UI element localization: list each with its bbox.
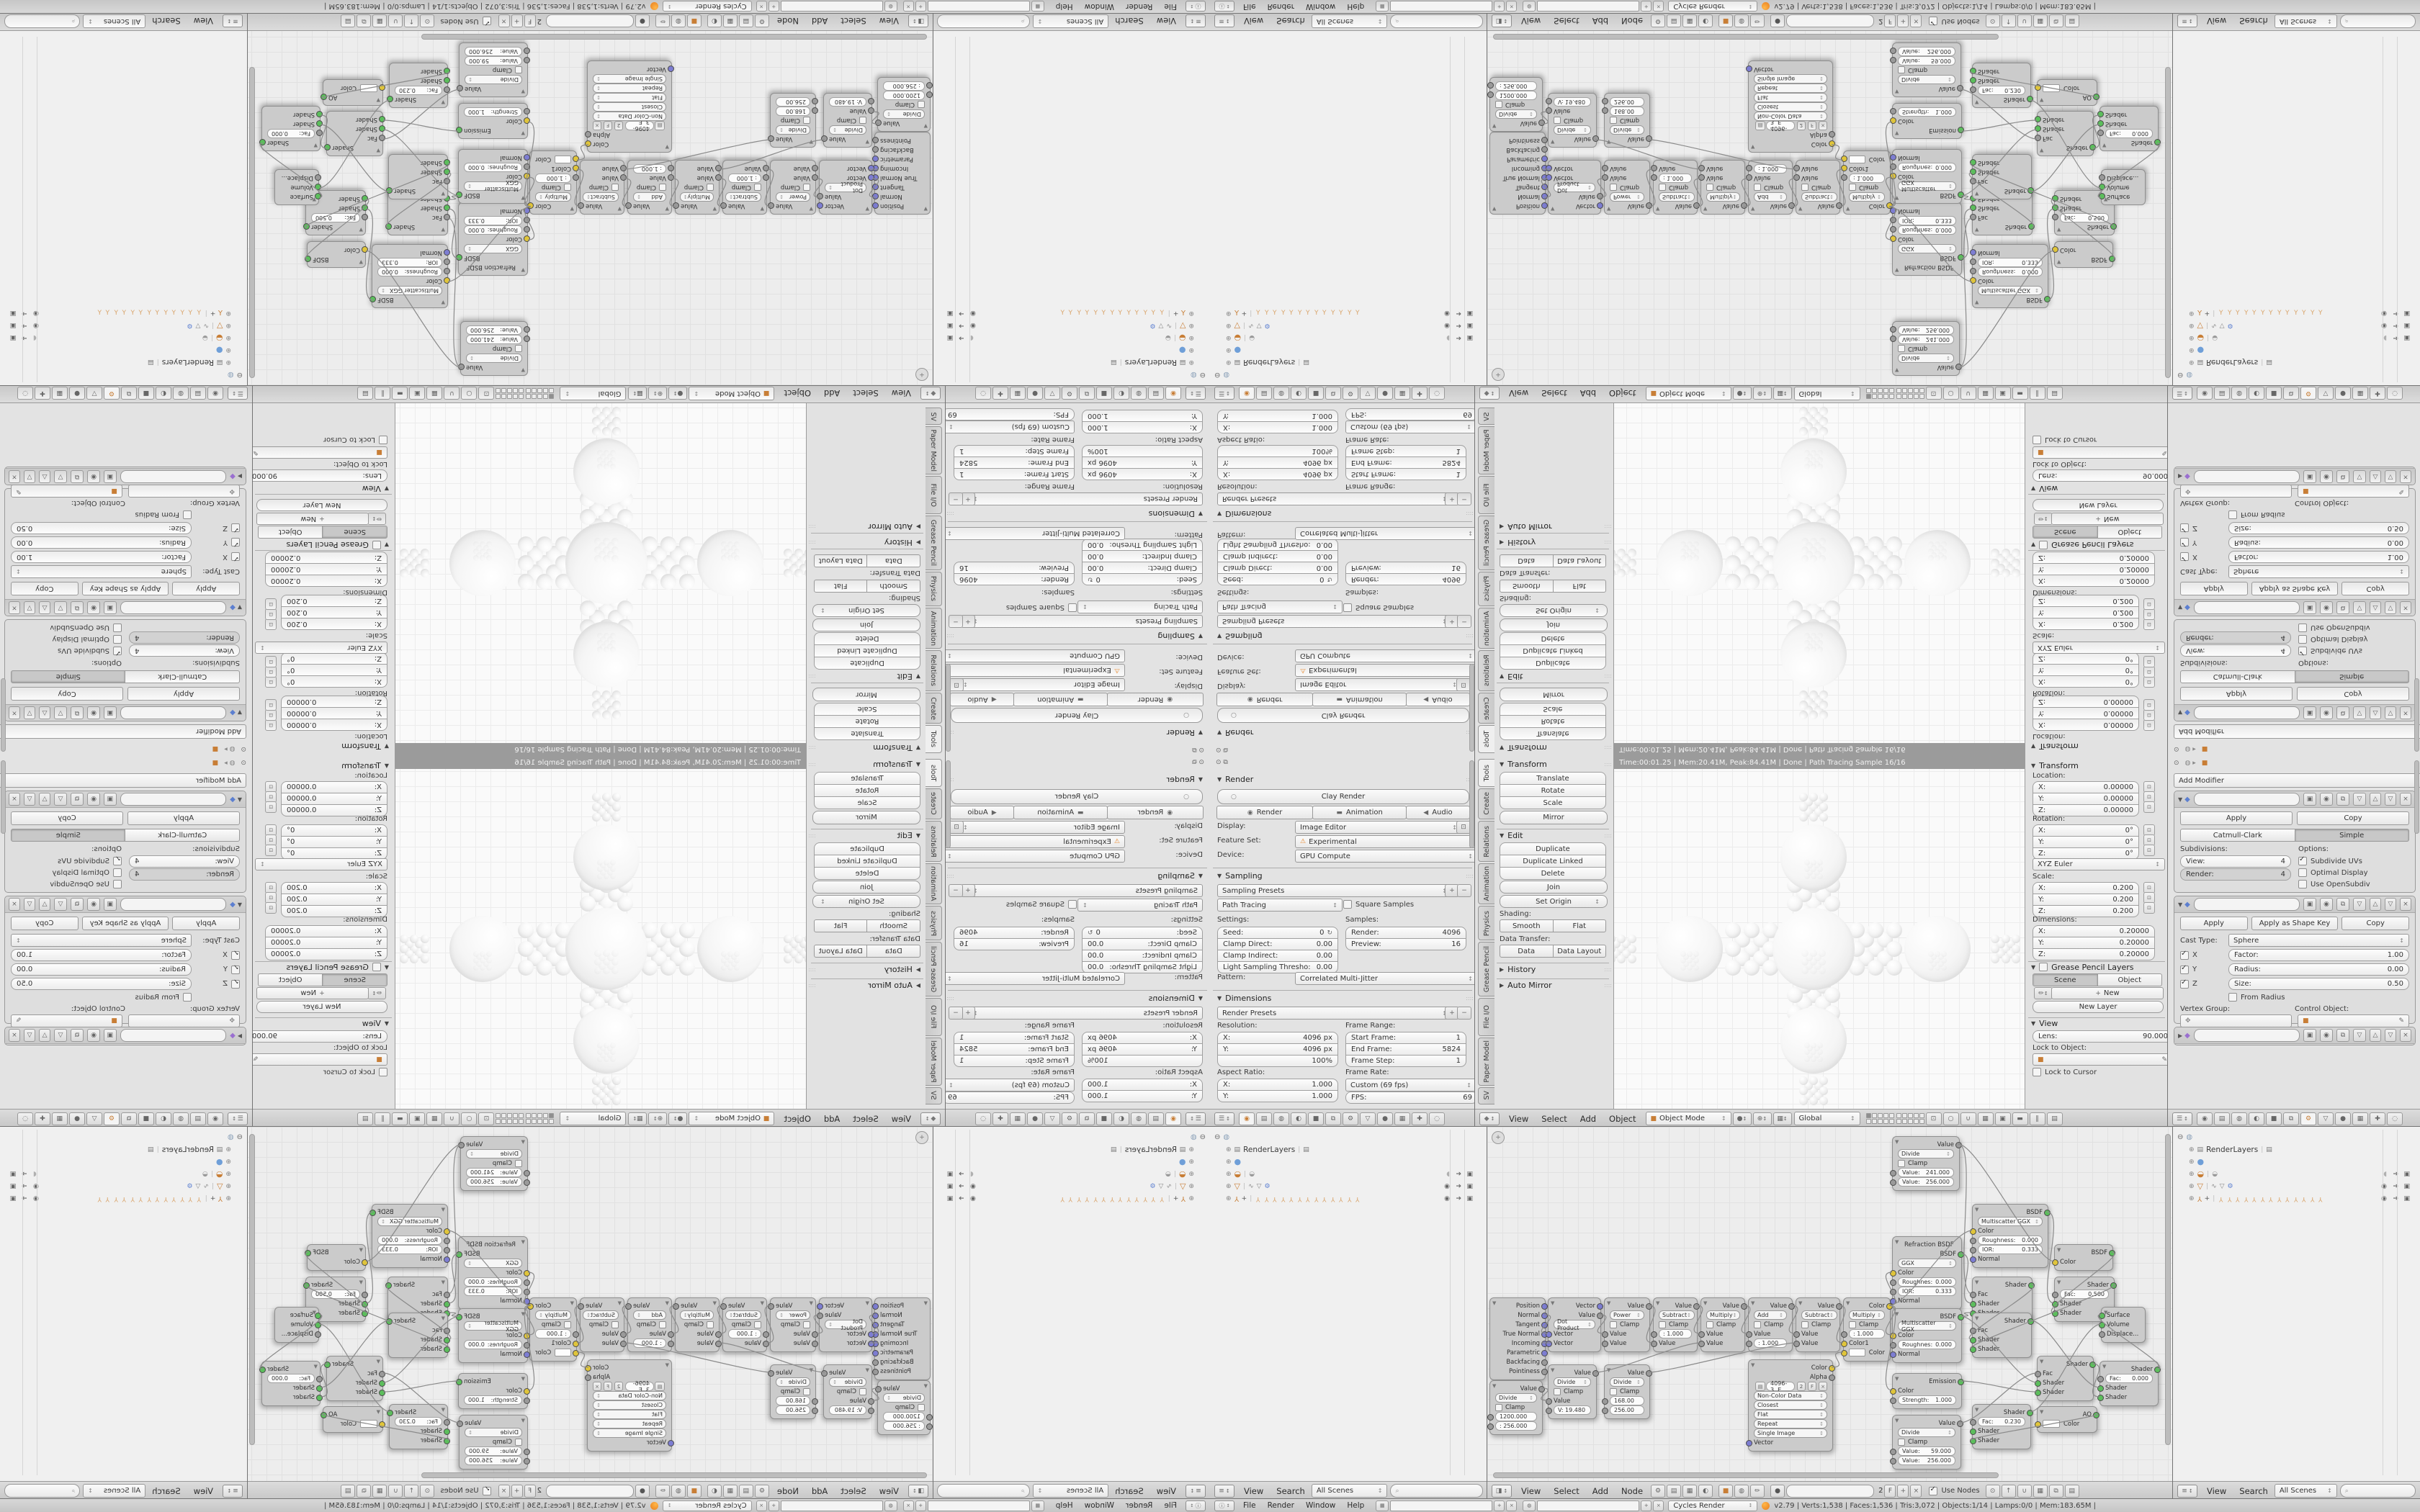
layer-cell[interactable] <box>549 1113 554 1118</box>
lock-axis-button[interactable]: ⊡ <box>265 902 277 914</box>
panel-auto-mirror[interactable]: ▶Auto Mirror:::: <box>1497 522 1615 532</box>
node-shader[interactable]: ▼ShaderFacShaderShader <box>2037 111 2094 156</box>
tab-modifiers[interactable]: ⚙ <box>1062 1112 1077 1125</box>
object-button[interactable]: ■ <box>1718 15 1733 28</box>
tab-world[interactable]: ◐ <box>1291 387 1307 400</box>
tab-render-layers[interactable]: ▤ <box>1148 387 1164 400</box>
node-scrollbar-vertical[interactable] <box>249 1134 255 1445</box>
node-checkbox[interactable] <box>611 184 619 192</box>
checkbox[interactable] <box>2039 541 2048 549</box>
tab-render-layers[interactable]: ▤ <box>2214 387 2230 400</box>
node-shader[interactable]: ▼ShaderFacShaderShader <box>388 1313 448 1358</box>
modifier-subsurf-move-up-button[interactable]: △ <box>39 793 50 806</box>
node-menu[interactable]: Multiply↕ <box>1849 192 1885 202</box>
layer-cell[interactable] <box>496 388 501 393</box>
scene-icon-button[interactable]: ◍ <box>884 1 897 12</box>
search-input[interactable]: ⌕ <box>1390 14 1483 28</box>
toolshelf-tab-fileio[interactable]: File I/O <box>926 998 942 1036</box>
node-checkbox[interactable] <box>859 1388 866 1395</box>
preset-remove-button[interactable]: − <box>1457 615 1471 628</box>
input-socket[interactable] <box>1970 160 1976 166</box>
node-menu[interactable]: Multiscatter GGX↕ <box>464 1321 522 1331</box>
menu-file[interactable]: File <box>1237 2 1262 11</box>
editor-type-button[interactable]: ☰↕ <box>228 387 248 400</box>
num-field-size_row[interactable]: Size:0.50 <box>2228 522 2409 534</box>
input-socket[interactable] <box>316 1376 323 1382</box>
node-refraction-bsdf[interactable]: ▼Refraction BSDFBSDFGGX↕ColorRoughnes:0.… <box>458 1236 528 1310</box>
input-socket[interactable] <box>715 1341 722 1347</box>
output-socket[interactable] <box>369 1210 376 1216</box>
button-transform[interactable]: Scale <box>814 796 920 809</box>
lock-object-field[interactable]: ■✎ <box>2033 446 2169 459</box>
modifier-cast-eye-toggle[interactable]: ◉ <box>2320 601 2333 614</box>
button-set-origin[interactable]: Set Origin↕ <box>812 604 920 617</box>
layer-cell[interactable] <box>1889 394 1894 399</box>
shader-type-button[interactable]: ⚙ <box>1651 15 1665 28</box>
editor-type-button[interactable]: ☰↕ <box>1214 387 1234 400</box>
unlink-material-button[interactable]: × <box>498 1485 510 1498</box>
num-field-resolution[interactable]: X:4096 px <box>1082 1032 1203 1044</box>
layer-cell[interactable] <box>526 394 531 399</box>
output-socket[interactable] <box>625 1303 632 1310</box>
button-mirror[interactable]: Mirror <box>812 688 920 701</box>
input-socket[interactable] <box>362 215 368 221</box>
image-icon-button[interactable]: ▤ <box>1755 121 1765 130</box>
input-socket[interactable] <box>524 336 530 343</box>
button-join[interactable]: Join <box>1500 881 1608 894</box>
panel-history[interactable]: ▶History:::: <box>805 538 923 548</box>
image-button[interactable]: ▤ <box>739 15 753 28</box>
button-audio_btn[interactable]: ◀Audio <box>950 693 1014 706</box>
material-name-field[interactable] <box>546 1485 634 1498</box>
panel-auto-mirror[interactable]: ▶Auto Mirror:::: <box>805 522 923 532</box>
num-field-aspect[interactable]: Y:1.000 <box>1082 410 1203 422</box>
modifier-cast-move-up-button[interactable]: △ <box>39 601 50 614</box>
input-socket[interactable] <box>1793 166 1800 172</box>
layer-grid[interactable] <box>1866 388 1894 399</box>
menu-view[interactable]: View <box>1150 17 1183 27</box>
node-menu[interactable]: GGX↕ <box>1898 244 1956 253</box>
node-value-field[interactable]: IOR:0.333 <box>1898 216 1956 225</box>
tab-physics[interactable]: ◌ <box>1429 1112 1445 1125</box>
output-socket[interactable] <box>1541 147 1548 153</box>
layer-cell[interactable] <box>526 388 531 393</box>
node-menu[interactable]: Multiply↕ <box>680 1310 714 1320</box>
outliner-row-renderlayers[interactable]: ⊕▤RenderLayers|▤ <box>937 356 1206 369</box>
input-socket[interactable] <box>573 156 579 163</box>
node-checkbox[interactable] <box>707 184 714 192</box>
output-socket[interactable] <box>872 156 879 163</box>
num-field-settings[interactable]: Light Sampling Thresho:0.00 <box>1082 539 1203 551</box>
input-socket[interactable] <box>668 1440 674 1446</box>
num-field-resolution[interactable]: 100% <box>1217 445 1338 457</box>
pattern-menu[interactable]: Correlated Multi-Jitter↕ <box>945 527 1125 540</box>
gp-new-layer-button[interactable]: New Layer <box>256 1001 387 1013</box>
panel-dimensions[interactable]: ▼Dimensions:::: <box>945 508 1206 520</box>
input-socket[interactable] <box>1602 108 1608 114</box>
modifier-collapsed-cage-toggle[interactable]: ▽ <box>54 1029 67 1042</box>
node-checkbox[interactable] <box>1898 67 1905 74</box>
panel-auto-mirror[interactable]: ▶Auto Mirror:::: <box>1497 980 1615 990</box>
button-data-layout[interactable]: Data Layout <box>814 554 868 567</box>
node-shader[interactable]: ▼ShaderFac:0.230ShaderShader <box>389 63 448 108</box>
tab-constraints[interactable]: ⧉ <box>1325 387 1341 400</box>
toolshelf-tab-sv[interactable]: SV <box>1478 1087 1494 1104</box>
subsurf-render_row[interactable]: Render:4 <box>129 868 240 881</box>
input-socket[interactable] <box>362 196 368 202</box>
input-socket[interactable] <box>362 1310 368 1317</box>
outliner-row-object-mesh[interactable]: ⊕▽|∿▽⚙◉➔▣ <box>1214 320 1483 332</box>
node-ao[interactable]: ▼AOColor <box>323 1406 383 1433</box>
output-socket[interactable] <box>872 147 879 153</box>
render-presets-menu[interactable]: Render Presets↕ <box>1217 492 1452 505</box>
panel-dimensions[interactable]: ▼Dimensions:::: <box>945 992 1206 1004</box>
tab-constraints[interactable]: ⧉ <box>121 387 137 400</box>
input-socket[interactable] <box>1970 269 1976 275</box>
node-value-field[interactable]: IOR:0.333 <box>377 1245 442 1254</box>
cast-copy-button[interactable]: Copy <box>11 917 79 930</box>
tab-material[interactable]: ● <box>1377 1112 1393 1125</box>
gp-new-button[interactable]: +New <box>2051 513 2164 525</box>
panel-view[interactable]: ▼View <box>251 484 392 494</box>
output-socket[interactable] <box>1541 194 1548 200</box>
node-bsdf[interactable]: ▼BSDFColor <box>307 241 366 268</box>
layout-name-field[interactable] <box>928 1 1030 12</box>
input-socket[interactable] <box>379 1380 385 1387</box>
input-socket[interactable] <box>2052 215 2058 221</box>
tab-data[interactable]: ▽ <box>1360 387 1376 400</box>
node-menu[interactable]: Multiscatter GGX↕ <box>464 181 522 191</box>
framerate-menu[interactable]: Custom (69 fps)↕ <box>945 420 1075 433</box>
tab-render[interactable]: ◉ <box>1165 1112 1181 1125</box>
input-socket[interactable] <box>524 1179 530 1186</box>
output-socket[interactable] <box>2109 256 2115 263</box>
input-socket[interactable] <box>1970 179 1976 185</box>
lock-axis-button[interactable]: ⊡ <box>2143 801 2155 813</box>
num-field-radius_row[interactable]: Radius:0.00 <box>2228 536 2409 549</box>
outliner-row-scene[interactable]: ⊖◍ <box>2177 369 2416 381</box>
image-users-button[interactable]: 2 <box>614 1382 623 1391</box>
integrator-menu[interactable]: Path Tracing↕ <box>1077 600 1203 613</box>
copy-button[interactable]: ⧉ <box>357 1485 371 1498</box>
input-socket[interactable] <box>316 1385 323 1392</box>
node-menu[interactable]: Divide↕ <box>776 1377 810 1387</box>
num-field-settings[interactable]: Seed:0↻ <box>1082 927 1203 939</box>
menu-search[interactable]: Search <box>1270 17 1312 27</box>
node-bsdf[interactable]: ▼BSDFMultiscatter GGX↕ColorRoughness:0.0… <box>1972 244 2048 308</box>
pause-button[interactable]: ‖ <box>2030 387 2045 400</box>
modifier-cast-cage-toggle[interactable]: ▽ <box>2353 601 2366 614</box>
tab-particles[interactable]: ✚ <box>992 1112 1008 1125</box>
toolshelf-tab-fileio[interactable]: File I/O <box>926 476 942 514</box>
output-socket[interactable] <box>817 1313 823 1319</box>
menu-render[interactable]: Render <box>1120 2 1158 11</box>
layer-cell[interactable] <box>519 1113 524 1118</box>
tab-scene[interactable]: ◍ <box>1273 387 1289 400</box>
menu-select[interactable]: Select <box>846 1114 884 1124</box>
button-flat[interactable]: Flat <box>1553 580 1607 593</box>
button-set-origin[interactable]: Set Origin↕ <box>1500 895 1608 908</box>
node-value-field[interactable]: Roughness:0.000 <box>1978 267 2043 276</box>
node-checkbox[interactable] <box>1610 117 1617 125</box>
modifier-cast-render-toggle[interactable]: ▣ <box>104 898 117 911</box>
modifier-subsurf-eye-toggle[interactable]: ◉ <box>87 706 100 719</box>
sphere-button[interactable]: ◐ <box>707 15 722 28</box>
modifier-collapsed-eye-toggle[interactable]: ◉ <box>87 1029 100 1042</box>
scene-lock-button[interactable]: ⊡ <box>478 387 494 400</box>
input-socket[interactable] <box>444 1292 450 1298</box>
modifier-collapsed-name-field[interactable] <box>120 470 226 483</box>
tab-scene[interactable]: ◍ <box>173 1112 189 1125</box>
dimensions-field[interactable]: Y:0.20000 <box>265 563 387 575</box>
output-socket[interactable] <box>458 1142 465 1148</box>
delete-layout-button[interactable]: × <box>903 1 914 12</box>
menu-view[interactable]: View <box>885 1114 918 1124</box>
input-socket[interactable] <box>524 217 530 224</box>
tab-data[interactable]: ▽ <box>1360 1112 1376 1125</box>
opengl-render-button[interactable]: ▬ <box>2012 387 2028 400</box>
rotation-field[interactable]: X:0° <box>2033 824 2139 837</box>
modifier-collapsed-render-toggle[interactable]: ▣ <box>104 1029 117 1042</box>
node-menu[interactable]: GGX↕ <box>464 1259 522 1268</box>
node-shader[interactable]: ▼ShaderFac:0.230ShaderShader <box>1972 63 2031 108</box>
num-field-samples[interactable]: Render:4096 <box>1345 927 1466 939</box>
input-socket[interactable] <box>444 278 450 284</box>
modifier-cast-editmode-toggle[interactable]: ⧉ <box>71 601 84 614</box>
input-socket[interactable] <box>524 1170 530 1176</box>
output-socket[interactable] <box>817 194 823 200</box>
input-socket[interactable] <box>379 135 385 142</box>
output-socket[interactable] <box>386 188 393 194</box>
input-socket[interactable] <box>1841 156 1847 163</box>
node-position[interactable]: ▼PositionNormalTangentTrue NormalIncomin… <box>874 1297 931 1380</box>
layer-cell[interactable] <box>549 394 554 399</box>
input-socket[interactable] <box>573 1331 579 1338</box>
output-socket[interactable] <box>305 256 311 263</box>
num-field-aspect[interactable]: X:1.000 <box>1082 421 1203 433</box>
paste-button[interactable]: ▤ <box>341 15 355 28</box>
display-mode-menu[interactable]: All Scenes↕ <box>1312 14 1388 28</box>
panel-render[interactable]: ▼Render:::: <box>1214 727 1475 739</box>
output-socket[interactable] <box>1829 132 1835 138</box>
num-field-settings[interactable]: Clamp Direct:0.00 <box>1217 938 1338 950</box>
dimensions-field[interactable]: Y:0.20000 <box>2033 563 2155 575</box>
input-socket[interactable] <box>444 1438 450 1444</box>
lock-to-cursor-checkbox[interactable]: Lock to Cursor <box>272 1068 387 1076</box>
node-menu[interactable]: Repeat↕ <box>593 84 666 93</box>
node-value-field[interactable]: : 1.000 <box>728 1329 761 1338</box>
rotation-field[interactable]: Y:0° <box>2033 664 2139 676</box>
tab-data[interactable]: ▽ <box>1044 387 1060 400</box>
toolshelf-tab-relations[interactable]: Relations <box>926 821 942 862</box>
button-transform[interactable]: Scale <box>1500 703 1606 716</box>
input-socket[interactable] <box>868 99 874 105</box>
checker-button[interactable]: ▦ <box>723 1485 738 1498</box>
input-socket[interactable] <box>2099 175 2105 181</box>
input-socket[interactable] <box>444 205 450 212</box>
axis-checkbox[interactable]: Z <box>2180 524 2225 533</box>
unlink-material-button[interactable]: × <box>1910 15 1922 28</box>
lock-axis-button[interactable]: ⊡ <box>265 676 277 688</box>
node-menu[interactable]: Subtract↕ <box>1659 192 1695 202</box>
snap-button[interactable]: ∪ <box>388 1485 403 1498</box>
subsurf-view_row[interactable]: View:4 <box>2180 644 2291 657</box>
input-socket[interactable] <box>316 1395 323 1401</box>
node-shader[interactable]: ▼ShaderFacShaderShader <box>326 1356 383 1401</box>
panel-npanel-transform[interactable]: ▼Transform <box>2028 742 2169 752</box>
layer-cell[interactable] <box>537 1113 542 1118</box>
color-swatch[interactable] <box>360 1420 377 1428</box>
layer-cell[interactable] <box>1896 394 1901 399</box>
editor-type-button[interactable]: ⓘ↕ <box>1186 1 1206 12</box>
node-menu[interactable]: Multiply↕ <box>535 192 571 202</box>
input-socket[interactable] <box>926 1423 933 1430</box>
input-socket[interactable] <box>444 1301 450 1308</box>
num-field-frame-range[interactable]: Start Frame:1 <box>1345 468 1466 480</box>
num-field-resolution[interactable]: Y:4096 px <box>1217 1043 1338 1056</box>
menu-object[interactable]: Object <box>1603 389 1642 399</box>
node-canvas[interactable]: +▼PositionNormalTangentTrue NormalIncomi… <box>1487 31 2173 385</box>
menu-window[interactable]: Window <box>1079 1501 1120 1510</box>
panel-edit[interactable]: ▼Edit:::: <box>805 672 923 682</box>
add-modifier-menu[interactable]: Add Modifier↕ <box>0 724 246 739</box>
input-socket[interactable] <box>315 1313 321 1319</box>
tab-material[interactable]: ● <box>1027 1112 1043 1125</box>
delete-layout-button[interactable]: × <box>903 1500 914 1511</box>
fps-field[interactable]: FPS:69 <box>945 1092 1075 1104</box>
node-value-field[interactable]: : 1.000 <box>633 164 666 174</box>
menu-search[interactable]: Search <box>2233 17 2275 27</box>
node-value-field[interactable]: Value:241.000 <box>466 335 522 344</box>
layout-name-field[interactable] <box>928 1500 1030 1511</box>
gp-pencil-button[interactable]: ✏↕ <box>367 513 386 525</box>
checkbox-subdivide_uvs[interactable]: Subdivide UVs <box>11 647 122 655</box>
input-socket[interactable] <box>812 1398 818 1405</box>
node-vector[interactable]: ▼VectorValueDot Product↕VectorVector <box>819 1297 872 1352</box>
node-menu[interactable]: Flat↕ <box>593 1410 666 1419</box>
node-bsdf[interactable]: ▼BSDFMultiscatter GGX↕ColorRoughnes:0.00… <box>458 1308 528 1363</box>
delete-scene-button[interactable]: × <box>756 1500 767 1511</box>
subsurf-copy-button[interactable]: Copy <box>2297 687 2409 701</box>
display-mode-menu[interactable]: All Scenes↕ <box>83 1484 145 1498</box>
node-checkbox[interactable] <box>515 346 522 353</box>
pattern-menu[interactable]: Correlated Multi-Jitter↕ <box>945 972 1125 985</box>
button-transform[interactable]: Rotate <box>814 784 920 797</box>
outliner-row-object-empties[interactable]: ⊕Y+|YYYYYYYYYYYYY◉➔▣ <box>937 307 1206 320</box>
layer-cell[interactable] <box>507 1119 512 1124</box>
render-engine-menu[interactable]: Cycles Render↕ <box>663 1500 752 1511</box>
scale-field[interactable]: X:0.200 <box>2033 618 2139 630</box>
panel-history[interactable]: ▶History:::: <box>1497 964 1615 974</box>
lock-axis-button[interactable]: ⊡ <box>265 719 277 731</box>
layout-name-field[interactable] <box>1390 1 1492 12</box>
output-socket[interactable] <box>259 1367 266 1373</box>
num-field-resolution[interactable]: 100% <box>1217 1055 1338 1067</box>
input-socket[interactable] <box>524 227 530 233</box>
input-socket[interactable] <box>2035 135 2041 142</box>
node-value[interactable]: ▼ValuePower↕ClampValueValue <box>770 1297 816 1352</box>
subsurf-apply-button[interactable]: Apply <box>2180 687 2293 701</box>
menu-select[interactable]: Select <box>846 389 884 399</box>
node-checkbox[interactable] <box>1754 184 1761 192</box>
num-field-settings[interactable]: Seed:0↻ <box>1082 573 1203 585</box>
node-value-field[interactable]: Roughness:0.000 <box>377 1236 442 1245</box>
outliner-row-world[interactable]: ⊕● <box>4 1156 243 1168</box>
input-socket[interactable] <box>2099 194 2105 200</box>
output-socket[interactable] <box>324 145 331 151</box>
button-set-origin[interactable]: Set Origin↕ <box>812 895 920 908</box>
node-menu[interactable]: Divide↕ <box>465 1428 522 1437</box>
object-button[interactable]: ■ <box>687 15 702 28</box>
num-field-frame-range[interactable]: Start Frame:1 <box>954 468 1075 480</box>
object-mode-menu[interactable]: ■Object Mode↕ <box>689 1112 774 1125</box>
axis-checkbox[interactable]: Y <box>2180 539 2225 547</box>
node-surface[interactable]: ▼SurfaceVolumeDisplace... <box>2101 169 2146 205</box>
fake-user-button[interactable]: F <box>524 1485 536 1498</box>
fake-user-button[interactable]: F <box>1884 15 1896 28</box>
clay-render-toggle[interactable]: ○Clay Render <box>1217 708 1469 723</box>
clay-render-toggle[interactable]: ○Clay Render <box>951 708 1203 723</box>
menu-window[interactable]: Window <box>1079 2 1120 11</box>
editor-type-button[interactable]: ◆↕ <box>920 387 941 400</box>
output-socket[interactable] <box>1646 203 1652 210</box>
menu-view[interactable]: View <box>873 1486 905 1496</box>
node-value[interactable]: ▼ValueDivide↕ClampValue:59.000Value:256.… <box>1892 42 1961 97</box>
modifier-subsurf-delete-button[interactable]: × <box>2400 706 2411 719</box>
num-field-settings[interactable]: Seed:0↻ <box>1217 927 1338 939</box>
input-socket[interactable] <box>812 166 818 172</box>
snap-element-button[interactable]: ▦ <box>426 1112 442 1125</box>
image-icon-button[interactable]: ▤ <box>655 121 665 130</box>
layout-icon-button[interactable]: ▦ <box>1376 1 1389 12</box>
location-field[interactable]: X:0.00000 <box>2033 781 2139 793</box>
axis-checkbox[interactable]: Z <box>195 524 240 533</box>
output-socket[interactable] <box>817 203 823 210</box>
node-menu[interactable]: Dot Product↕ <box>825 183 866 192</box>
modifier-cast-editmode-toggle[interactable]: ⧉ <box>71 898 84 911</box>
layer-cell[interactable] <box>1866 394 1871 399</box>
outliner-row-object-lattice[interactable]: ⊕◒|◒◖➔▣ <box>937 1168 1206 1180</box>
use-nodes-checkbox[interactable]: Use Nodes <box>1929 17 1979 26</box>
node-menu[interactable]: Multiply↕ <box>1706 192 1740 202</box>
num-field-frame-range[interactable]: Frame Step:1 <box>954 445 1075 457</box>
output-socket[interactable] <box>1957 86 1963 92</box>
subsurf-apply-button[interactable]: Apply <box>127 811 240 825</box>
node-value-field[interactable]: Value:241.000 <box>466 1168 522 1177</box>
tab-texture[interactable]: ▦ <box>1010 387 1026 400</box>
layer-cell[interactable] <box>501 1113 506 1118</box>
output-socket[interactable] <box>303 1282 310 1289</box>
input-socket[interactable] <box>812 99 818 105</box>
layer-cell[interactable] <box>1919 394 1924 399</box>
input-socket[interactable] <box>524 1342 530 1349</box>
scene-selector[interactable]: ◍+× <box>756 1 899 12</box>
gp-new-button[interactable]: +New <box>256 513 369 525</box>
preset-remove-button[interactable]: − <box>949 492 963 505</box>
output-socket[interactable] <box>1836 203 1842 210</box>
tab-render[interactable]: ◉ <box>207 1112 223 1125</box>
modifier-subsurf-render-toggle[interactable]: ▣ <box>2303 706 2316 719</box>
add-modifier-menu[interactable]: Add Modifier↕ <box>2174 724 2420 739</box>
node-checkbox[interactable] <box>515 1160 522 1167</box>
tab-material[interactable]: ● <box>69 1112 85 1125</box>
lock-axis-button[interactable]: ⊡ <box>265 598 277 610</box>
input-socket[interactable] <box>812 108 818 114</box>
input-socket[interactable] <box>524 236 530 243</box>
layer-cell[interactable] <box>537 1119 542 1124</box>
node-value[interactable]: ▼ValueDivide↕Clamp168.00256.00 <box>770 93 816 148</box>
modifier-cast-cage-toggle[interactable]: ▽ <box>54 898 67 911</box>
